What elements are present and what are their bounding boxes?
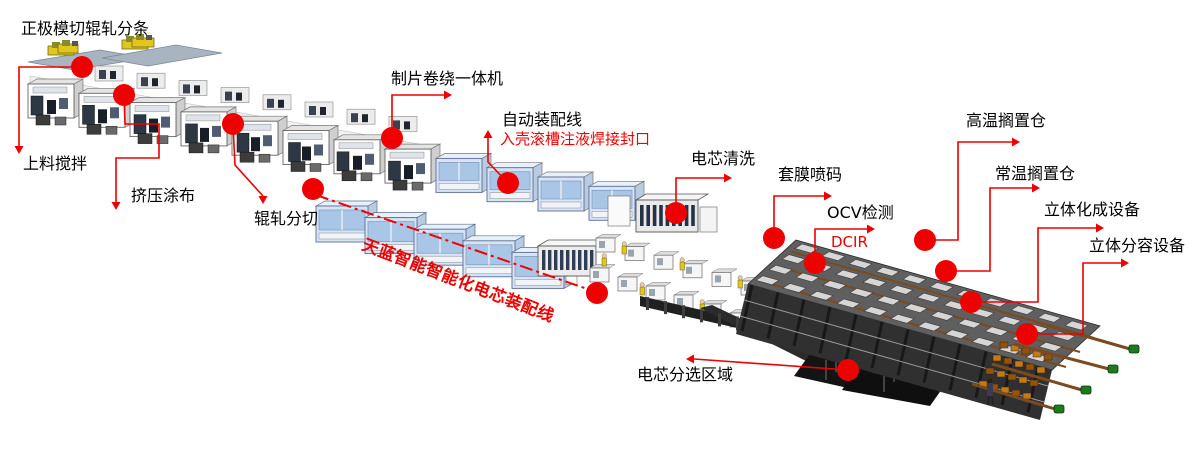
station-dot — [71, 56, 93, 78]
arrowhead — [1032, 184, 1040, 193]
station-dot — [113, 84, 135, 106]
station-dot — [665, 202, 687, 224]
station-dot — [763, 227, 785, 249]
station-dot — [960, 291, 982, 313]
annotation-cell-cleaning — [665, 174, 732, 225]
arrowhead — [824, 192, 832, 201]
label-stereo-formation-equipment: 立体化成设备 — [1044, 202, 1140, 219]
line-end-dot — [586, 282, 608, 304]
station-dot — [914, 229, 936, 251]
station-dot — [1016, 323, 1038, 345]
label-roll-slitting: 辊轧分切 — [254, 211, 318, 228]
arrowhead — [686, 355, 694, 364]
station-dot — [935, 260, 957, 282]
label-high-temp-aging: 高温搁置仓 — [966, 113, 1046, 130]
annotation-overlay: 天蓝智能智能化电芯装配线 — [0, 0, 1193, 465]
label-positive-die-cut-slitting: 正极模切辊轧分条 — [21, 21, 149, 38]
connector-line — [1027, 263, 1121, 334]
annotation-high-temp-aging — [914, 138, 1020, 252]
arrowhead — [724, 174, 732, 183]
annotation-feeding-mixing — [15, 56, 94, 154]
arrowhead — [1121, 259, 1129, 268]
assembly-line-banner: 天蓝智能智能化电芯装配线 — [302, 178, 608, 326]
connector-line — [925, 142, 1012, 240]
annotation-normal-temp-aging — [935, 184, 1040, 283]
sublabel-auto-assembly-line: 入壳滚槽注液焊接封口 — [500, 132, 650, 148]
sublabel-ocv-test: DCIR — [831, 235, 868, 251]
annotation-sheet-winding-machine — [381, 91, 452, 150]
connector-line — [233, 124, 263, 196]
station-dot — [222, 113, 244, 135]
arrowhead — [259, 196, 268, 204]
station-dot — [804, 252, 826, 274]
annotation-film-wrap-coding — [763, 192, 832, 250]
label-cell-cleaning: 电芯清洗 — [691, 151, 755, 168]
battery-production-line-diagram: 天蓝智能智能化电芯装配线 正极模切辊轧分条上料搅拌挤压涂布辊轧分切制片卷绕一体机… — [0, 0, 1193, 465]
station-dot — [837, 359, 859, 381]
label-sheet-winding-machine: 制片卷绕一体机 — [391, 71, 503, 88]
arrowhead — [484, 130, 493, 138]
label-extrusion-coating: 挤压涂布 — [131, 188, 195, 205]
arrowhead — [15, 146, 24, 154]
banner-text: 天蓝智能智能化电芯装配线 — [360, 234, 558, 326]
label-stereo-grading-equipment: 立体分容设备 — [1089, 238, 1185, 255]
arrowhead — [444, 91, 452, 100]
arrowhead — [1096, 224, 1104, 233]
label-auto-assembly-line: 自动装配线 — [502, 112, 582, 129]
connector-line — [19, 67, 82, 146]
label-normal-temp-aging: 常温搁置仓 — [995, 166, 1075, 183]
label-feeding-mixing: 上料搅拌 — [23, 156, 87, 173]
label-film-wrap-coding: 套膜喷码 — [778, 167, 842, 184]
line-end-dot — [302, 178, 324, 200]
connector-line — [946, 188, 1032, 271]
annotation-roll-slitting — [222, 113, 268, 204]
arrowhead — [1012, 138, 1020, 147]
station-dot — [497, 172, 519, 194]
label-cell-sorting-area: 电芯分选区域 — [637, 367, 733, 384]
station-dot — [381, 127, 403, 149]
arrowhead — [112, 202, 121, 210]
label-ocv-test: OCV检测 — [827, 205, 894, 222]
arrowhead — [867, 225, 875, 234]
